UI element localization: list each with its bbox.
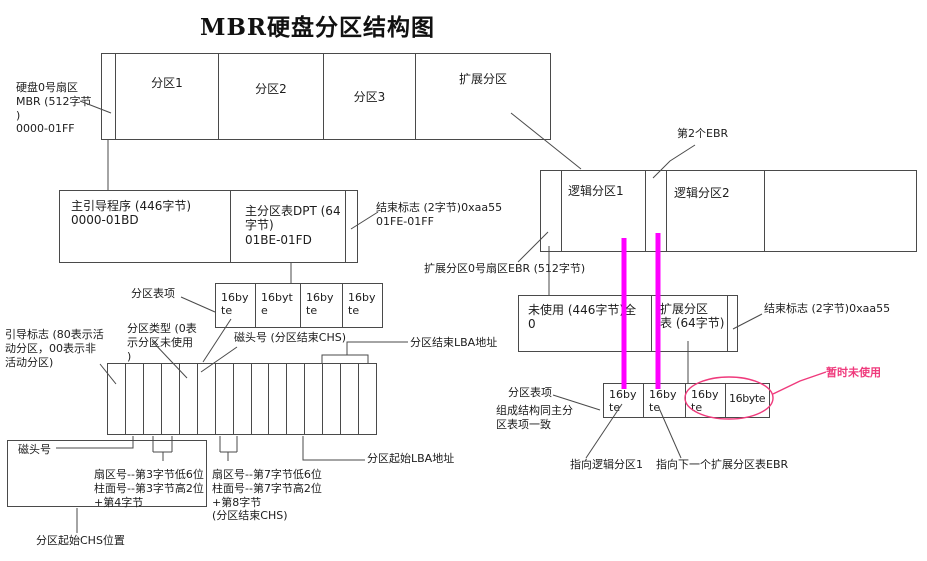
- partition-type-label: 分区类型 (0表 示分区未使用 ): [127, 322, 197, 363]
- temp-unused-label: 暂时未使用: [826, 366, 881, 380]
- entry-label-left-pointer: [181, 297, 215, 312]
- head-end-label: 磁头号 (分区结束CHS): [234, 331, 346, 345]
- diagram-canvas: MBR硬盘分区结构图 分区1 分区2 分区3 扩展分区 硬盘0号扇区 MBR (…: [0, 0, 927, 561]
- start-lba-wire: [303, 436, 365, 460]
- ebr-sector-label: 扩展分区0号扇区EBR (512字节): [424, 262, 585, 276]
- dpt-cell: 主分区表DPT (64 字节) 01BE-01FD: [231, 191, 346, 262]
- byte-cell: [269, 364, 287, 434]
- partition-entry-label-right: 分区表项: [508, 386, 552, 400]
- ebr-entry-cell-4: 16byte: [726, 384, 769, 417]
- end-lba-label: 分区结束LBA地址: [410, 336, 497, 350]
- start-chs-bytes-label: 扇区号--第3字节低6位 柱面号--第3字节高2位 +第4字节: [94, 468, 204, 509]
- disk-cell-partition2: 分区2: [219, 54, 324, 139]
- byte-cell: [198, 364, 216, 434]
- temp-unused-pointer: [773, 372, 826, 394]
- entry-row-mbr: 16byte 16byte 16byte 16byte: [215, 283, 383, 328]
- end-chs-bytes-label: 扇区号--第7字节低6位 柱面号--第7字节高2位 +第8字节 (分区结束CHS…: [212, 468, 322, 523]
- byte-cell: [162, 364, 180, 434]
- ebr-entry-cell-3: 16byte: [686, 384, 726, 417]
- byte-grid: [107, 363, 377, 435]
- ebr-cell-header: [541, 171, 562, 251]
- end-flag-cell: [346, 191, 357, 262]
- byte-cell: [305, 364, 323, 434]
- second-ebr-cell: [646, 171, 667, 251]
- logical-partition1-cell: 逻辑分区1: [562, 171, 646, 251]
- partition-entry-label-left: 分区表项: [131, 287, 175, 301]
- entry-cell-1: 16byte: [216, 284, 256, 327]
- byte-cell: [287, 364, 305, 434]
- entry-cell-4: 16byte: [343, 284, 382, 327]
- ebr-unused-cell: 未使用 (446字节)全 0: [519, 296, 652, 351]
- byte-cell: [359, 364, 376, 434]
- byte-cell: [180, 364, 198, 434]
- byte-cell: [108, 364, 126, 434]
- end-flag-right-label: 结束标志 (2字节)0xaa55: [764, 302, 890, 316]
- ebr-row: 逻辑分区1 逻辑分区2: [540, 170, 917, 252]
- byte-cell: [341, 364, 359, 434]
- entry-cell-2: 16byte: [256, 284, 301, 327]
- byte-cell: [323, 364, 341, 434]
- same-structure-label: 组成结构同主分 区表项一致: [496, 404, 573, 432]
- diagram-title: MBR硬盘分区结构图: [200, 8, 435, 42]
- ebr-end-flag-cell: [728, 296, 737, 351]
- entry-row-ebr: 16byte 16byte 16byte 16byte: [603, 383, 770, 418]
- byte-cell: [126, 364, 144, 434]
- disk-cell-partition1: 分区1: [116, 54, 219, 139]
- byte-cell: [234, 364, 252, 434]
- second-ebr-label: 第2个EBR: [677, 127, 728, 141]
- ebr-empty-cell: [765, 171, 916, 251]
- disk-cell-mbr: [102, 54, 116, 139]
- end-chs-bracket: [220, 436, 237, 461]
- boot-flag-label: 引导标志 (80表示活 动分区，00表示非 活动分区): [5, 328, 104, 369]
- disk-cell-partition3: 分区3: [324, 54, 416, 139]
- end-flag-left-label: 结束标志 (2字节)0xaa55 01FE-01FF: [376, 201, 502, 229]
- byte-cell: [252, 364, 270, 434]
- disk-cell-extended: 扩展分区: [416, 54, 550, 139]
- byte-cell: [216, 364, 234, 434]
- point-logical1-label: 指向逻辑分区1: [570, 458, 643, 472]
- byte-cell: [144, 364, 162, 434]
- entry-cell-3: 16byte: [301, 284, 343, 327]
- mbr-box: 主引导程序 (446字节) 0000-01BD 主分区表DPT (64 字节) …: [59, 190, 358, 263]
- end-lba-bracket: [322, 342, 408, 363]
- ebr-box: 未使用 (446字节)全 0 扩展分区 表 (64字节): [518, 295, 738, 352]
- logical-partition2-cell: 逻辑分区2: [667, 171, 765, 251]
- head-label: 磁头号: [18, 443, 51, 457]
- start-chs-label: 分区起始CHS位置: [36, 534, 125, 548]
- start-lba-label: 分区起始LBA地址: [367, 452, 454, 466]
- ebr-entry-cell-1: 16byte: [604, 384, 644, 417]
- point-next-ebr-label: 指向下一个扩展分区表EBR: [656, 458, 788, 472]
- mbr-sector-label: 硬盘0号扇区 MBR (512字节 ) 0000-01FF: [16, 81, 91, 136]
- ebr-entry-cell-2: 16byte: [644, 384, 686, 417]
- disk-row: 分区1 分区2 分区3 扩展分区: [101, 53, 551, 140]
- boot-code-cell: 主引导程序 (446字节) 0000-01BD: [60, 191, 231, 262]
- ext-table-cell: 扩展分区 表 (64字节): [652, 296, 728, 351]
